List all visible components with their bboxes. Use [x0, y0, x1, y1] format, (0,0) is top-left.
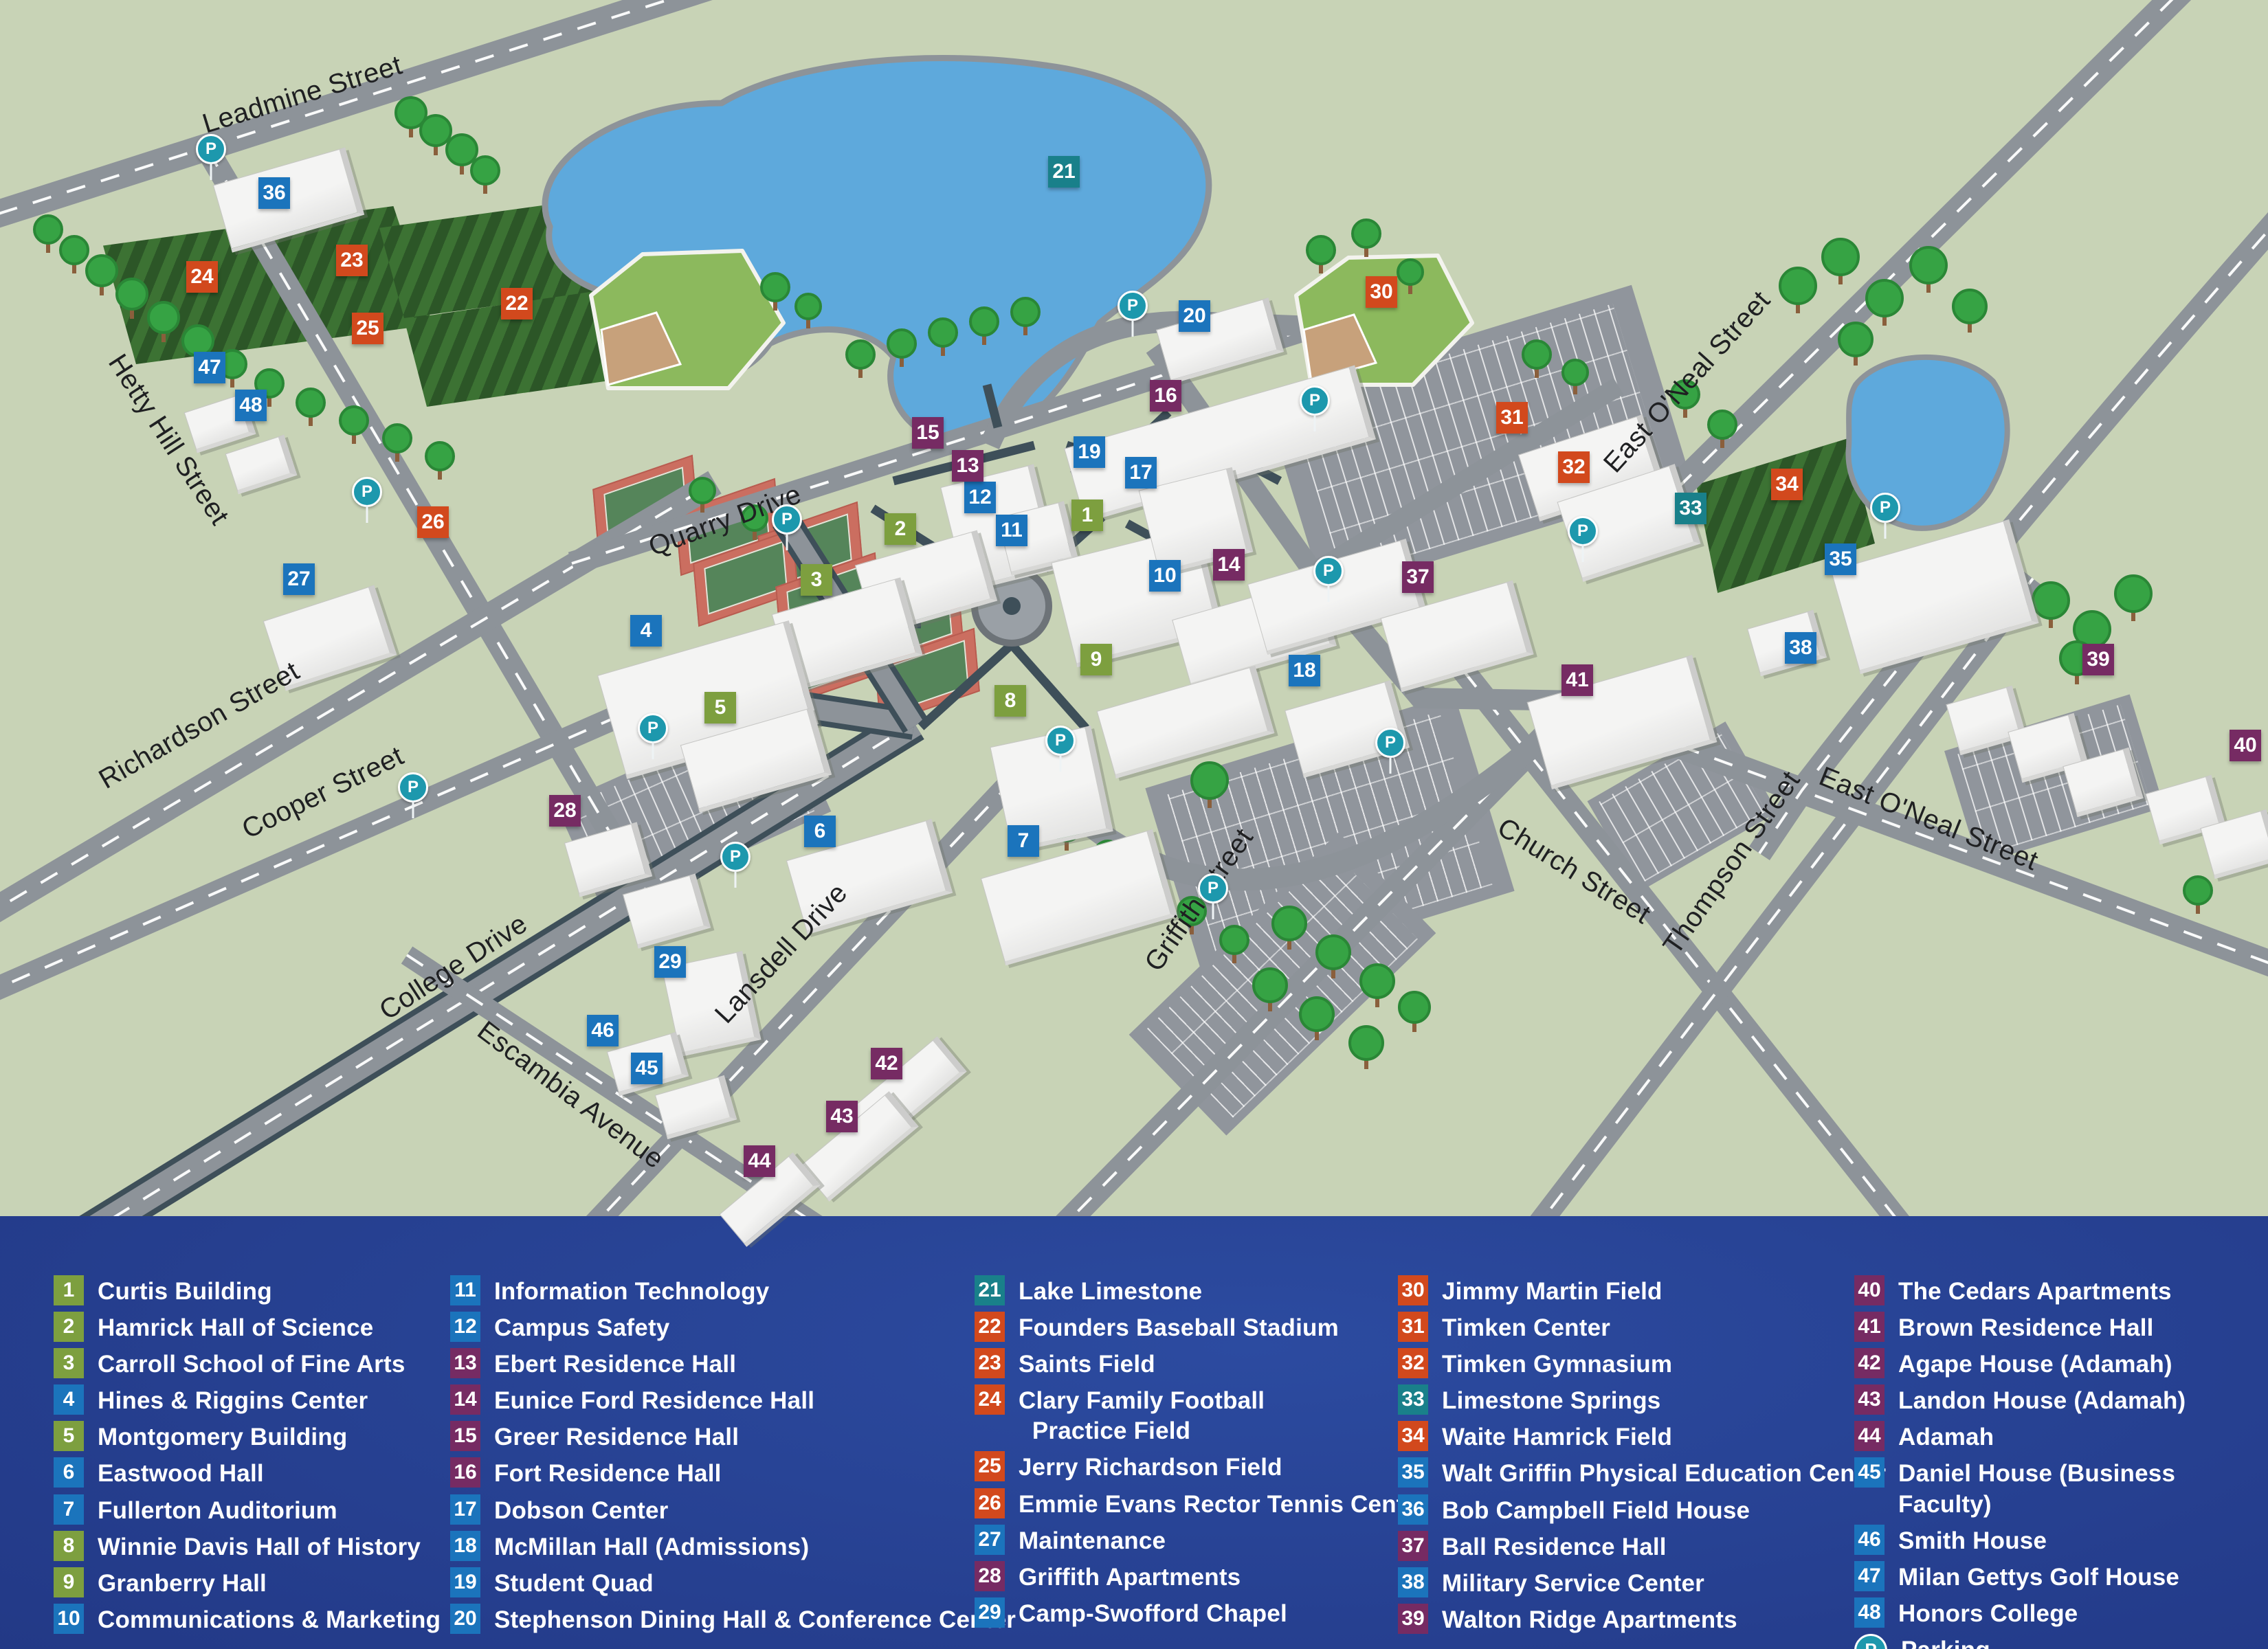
- legend-number-chip: 29: [975, 1597, 1005, 1628]
- legend-item-label: Ebert Residence Hall: [494, 1348, 736, 1380]
- legend-item-label: Milan Gettys Golf House: [1898, 1561, 2179, 1593]
- legend-number-chip: 27: [975, 1525, 1005, 1555]
- map-marker-10: 10: [1149, 560, 1181, 592]
- legend-item-label: Walton Ridge Apartments: [1442, 1604, 1737, 1635]
- legend-item-12: 12Campus Safety: [450, 1312, 1016, 1343]
- parking-marker-icon: P: [638, 713, 668, 743]
- map-marker-2: 2: [885, 513, 916, 545]
- parking-marker-icon: P: [1198, 873, 1228, 904]
- legend-item-3: 3Carroll School of Fine Arts: [54, 1348, 441, 1380]
- legend-item-label: Camp-Swofford Chapel: [1019, 1597, 1287, 1629]
- legend-item-38: 38Military Service Center: [1398, 1567, 1886, 1599]
- map-marker-14: 14: [1213, 549, 1245, 581]
- parking-marker-stem: [1582, 544, 1584, 562]
- parking-marker-icon: P: [1045, 726, 1076, 756]
- map-marker-22: 22: [501, 288, 533, 319]
- legend-number-chip: 1: [54, 1275, 84, 1305]
- map-marker-31: 31: [1496, 402, 1528, 434]
- legend-item-label: Carroll School of Fine Arts: [98, 1348, 405, 1380]
- legend-item-label: Fullerton Auditorium: [98, 1494, 337, 1526]
- legend-item-28: 28Griffith Apartments: [975, 1561, 1427, 1593]
- map-marker-40: 40: [2230, 730, 2261, 761]
- legend-number-chip: 39: [1398, 1604, 1428, 1634]
- legend-item-label: Fort Residence Hall: [494, 1457, 722, 1489]
- legend-item-5: 5Montgomery Building: [54, 1421, 441, 1452]
- legend-item-label: The Cedars Apartments: [1898, 1275, 2172, 1307]
- legend-number-chip: 33: [1398, 1384, 1428, 1415]
- legend-number-chip: 32: [1398, 1348, 1428, 1378]
- map-marker-18: 18: [1289, 655, 1320, 686]
- legend-number-chip: 19: [450, 1567, 480, 1597]
- legend-item-label: Smith House: [1898, 1525, 2047, 1556]
- map-marker-30: 30: [1366, 276, 1397, 308]
- legend-item-20: 20Stephenson Dining Hall & Conference Ce…: [450, 1604, 1016, 1635]
- map-marker-28: 28: [549, 795, 581, 827]
- map-marker-34: 34: [1771, 469, 1803, 500]
- legend-number-chip: 31: [1398, 1312, 1428, 1342]
- legend-item-14: 14Eunice Ford Residence Hall: [450, 1384, 1016, 1416]
- legend-item-label: Granberry Hall: [98, 1567, 267, 1599]
- map-marker-32: 32: [1558, 451, 1590, 483]
- legend-item-label: Daniel House (Business Faculty): [1898, 1457, 2268, 1519]
- legend-number-chip: 37: [1398, 1531, 1428, 1561]
- parking-marker-stem: [1212, 901, 1214, 919]
- map-marker-26: 26: [417, 506, 449, 538]
- legend-number-chip: 35: [1398, 1457, 1428, 1488]
- legend-item-23: 23Saints Field: [975, 1348, 1427, 1380]
- parking-marker-icon: P: [1375, 728, 1405, 758]
- legend-column-4: 30Jimmy Martin Field31Timken Center32Tim…: [1398, 1275, 1886, 1635]
- legend-item-46: 46Smith House: [1854, 1525, 2268, 1556]
- legend-item-label: Ball Residence Hall: [1442, 1531, 1667, 1562]
- legend-number-chip: 28: [975, 1561, 1005, 1591]
- legend-item-37: 37Ball Residence Hall: [1398, 1531, 1886, 1562]
- map-marker-39: 39: [2082, 644, 2114, 675]
- legend-item-label: Griffith Apartments: [1019, 1561, 1241, 1593]
- legend-item-label: Brown Residence Hall: [1898, 1312, 2154, 1343]
- legend-item-34: 34Waite Hamrick Field: [1398, 1421, 1886, 1452]
- legend-item-label: Hamrick Hall of Science: [98, 1312, 373, 1343]
- legend-item-19: 19Student Quad: [450, 1567, 1016, 1599]
- legend-item-label: Jimmy Martin Field: [1442, 1275, 1663, 1307]
- map-marker-7: 7: [1008, 825, 1039, 857]
- legend-item-10: 10Communications & Marketing: [54, 1604, 441, 1635]
- legend-item-40: 40The Cedars Apartments: [1854, 1275, 2268, 1307]
- map-marker-38: 38: [1785, 632, 1816, 664]
- map-marker-47: 47: [194, 352, 225, 383]
- legend-item-41: 41Brown Residence Hall: [1854, 1312, 2268, 1343]
- legend-item-22: 22Founders Baseball Stadium: [975, 1312, 1427, 1343]
- legend-item-label: Limestone Springs: [1442, 1384, 1660, 1416]
- legend-item-42: 42Agape House (Adamah): [1854, 1348, 2268, 1380]
- legend-item-label: Waite Hamrick Field: [1442, 1421, 1672, 1452]
- legend-item-label: Montgomery Building: [98, 1421, 348, 1452]
- parking-marker-icon: P: [196, 134, 226, 164]
- legend-item-label: Information Technology: [494, 1275, 769, 1307]
- parking-marker-stem: [1328, 584, 1330, 602]
- legend-item-24: 24Clary Family Football Practice Field: [975, 1384, 1427, 1446]
- legend-item-label: Dobson Center: [494, 1494, 668, 1526]
- legend-item-6: 6Eastwood Hall: [54, 1457, 441, 1489]
- legend-item-7: 7Fullerton Auditorium: [54, 1494, 441, 1526]
- legend-item-29: 29Camp-Swofford Chapel: [975, 1597, 1427, 1629]
- parking-marker-stem: [412, 800, 414, 818]
- legend-item-label: Campus Safety: [494, 1312, 669, 1343]
- legend-item-label: Founders Baseball Stadium: [1019, 1312, 1339, 1343]
- legend-item-33: 33Limestone Springs: [1398, 1384, 1886, 1416]
- legend-item-2: 2Hamrick Hall of Science: [54, 1312, 441, 1343]
- legend-number-chip: 44: [1854, 1421, 1885, 1451]
- parking-marker-stem: [786, 532, 788, 550]
- legend-item-label: Eunice Ford Residence Hall: [494, 1384, 814, 1416]
- parking-marker-stem: [210, 162, 212, 180]
- map-marker-41: 41: [1561, 664, 1593, 696]
- map-marker-3: 3: [801, 564, 832, 596]
- legend-item-label: Student Quad: [494, 1567, 654, 1599]
- legend-item-30: 30Jimmy Martin Field: [1398, 1275, 1886, 1307]
- map-marker-5: 5: [704, 692, 736, 723]
- map-marker-11: 11: [996, 515, 1027, 546]
- map-marker-23: 23: [336, 245, 368, 276]
- map-marker-8: 8: [994, 685, 1026, 717]
- legend-number-chip: 13: [450, 1348, 480, 1378]
- legend-number-chip: 48: [1854, 1597, 1885, 1628]
- legend-item-label: Agape House (Adamah): [1898, 1348, 2172, 1380]
- legend-number-chip: 43: [1854, 1384, 1885, 1415]
- legend-item-label: Communications & Marketing: [98, 1604, 441, 1635]
- legend-number-chip: 14: [450, 1384, 480, 1415]
- legend-number-chip: 20: [450, 1604, 480, 1634]
- parking-marker-icon: P: [1313, 556, 1344, 586]
- legend-item-27: 27Maintenance: [975, 1525, 1427, 1556]
- map-marker-1: 1: [1071, 500, 1103, 531]
- legend-item-label: Winnie Davis Hall of History: [98, 1531, 421, 1562]
- legend-number-chip: 2: [54, 1312, 84, 1342]
- parking-marker-icon: P: [1300, 385, 1330, 416]
- map-marker-48: 48: [235, 390, 267, 421]
- map-marker-6: 6: [804, 816, 836, 847]
- legend-number-chip: 34: [1398, 1421, 1428, 1451]
- legend-number-chip: 4: [54, 1384, 84, 1415]
- legend-item-45: 45Daniel House (Business Faculty): [1854, 1457, 2268, 1519]
- parking-marker-stem: [1885, 521, 1887, 539]
- campus-map-page: Leadmine StreetHetty Hill StreetRichards…: [0, 0, 2268, 1649]
- legend-item-47: 47Milan Gettys Golf House: [1854, 1561, 2268, 1593]
- legend-item-39: 39Walton Ridge Apartments: [1398, 1604, 1886, 1635]
- legend-number-chip: 36: [1398, 1494, 1428, 1525]
- legend-item-1: 1Curtis Building: [54, 1275, 441, 1307]
- parking-marker-stem: [366, 505, 368, 523]
- legend-number-chip: 8: [54, 1531, 84, 1561]
- map-marker-15: 15: [912, 417, 944, 449]
- legend-item-label: Bob Campbell Field House: [1442, 1494, 1750, 1526]
- legend-column-5: 40The Cedars Apartments41Brown Residence…: [1854, 1275, 2268, 1649]
- parking-marker-icon: P: [1870, 493, 1900, 523]
- map-marker-19: 19: [1074, 436, 1105, 468]
- map-marker-44: 44: [744, 1145, 775, 1177]
- legend-item-35: 35Walt Griffin Physical Education Center: [1398, 1457, 1886, 1489]
- parking-marker-icon: P: [720, 842, 751, 872]
- parking-marker-icon: P: [352, 477, 382, 507]
- legend-item-32: 32Timken Gymnasium: [1398, 1348, 1886, 1380]
- legend-number-chip: 46: [1854, 1525, 1885, 1555]
- map-marker-33: 33: [1675, 493, 1706, 524]
- legend-item-label: Emmie Evans Rector Tennis Center: [1019, 1488, 1427, 1520]
- map-marker-20: 20: [1179, 300, 1210, 332]
- legend-number-chip: 10: [54, 1604, 84, 1634]
- parking-marker-stem: [735, 870, 737, 888]
- legend-column-2: 11Information Technology12Campus Safety1…: [450, 1275, 1016, 1635]
- legend-item-label: Honors College: [1898, 1597, 2078, 1629]
- map-marker-21: 21: [1048, 156, 1080, 188]
- legend-column-1: 1Curtis Building2Hamrick Hall of Science…: [54, 1275, 441, 1635]
- map-marker-27: 27: [283, 563, 315, 595]
- legend-number-chip: 24: [975, 1384, 1005, 1415]
- legend-item-13: 13Ebert Residence Hall: [450, 1348, 1016, 1380]
- parking-marker-icon: P: [398, 772, 428, 803]
- legend-number-chip: 45: [1854, 1457, 1885, 1488]
- legend-item-15: 15Greer Residence Hall: [450, 1421, 1016, 1452]
- legend-item-label: Greer Residence Hall: [494, 1421, 739, 1452]
- map-marker-46: 46: [587, 1015, 619, 1046]
- legend-item-P: PParking: [1854, 1634, 2268, 1649]
- legend-number-chip: 38: [1398, 1567, 1428, 1597]
- legend-number-chip: 7: [54, 1494, 84, 1525]
- map-marker-25: 25: [352, 313, 383, 344]
- legend-item-44: 44Adamah: [1854, 1421, 2268, 1452]
- legend-item-8: 8Winnie Davis Hall of History: [54, 1531, 441, 1562]
- map-marker-29: 29: [654, 946, 686, 978]
- map-marker-35: 35: [1825, 543, 1856, 575]
- legend-number-chip: 25: [975, 1451, 1005, 1481]
- legend-item-17: 17Dobson Center: [450, 1494, 1016, 1526]
- legend-item-4: 4Hines & Riggins Center: [54, 1384, 441, 1416]
- legend-item-9: 9Granberry Hall: [54, 1567, 441, 1599]
- legend-number-chip: 11: [450, 1275, 480, 1305]
- legend-item-label: Walt Griffin Physical Education Center: [1442, 1457, 1886, 1489]
- legend-item-25: 25Jerry Richardson Field: [975, 1451, 1427, 1483]
- legend-panel: 1Curtis Building2Hamrick Hall of Science…: [0, 1216, 2268, 1649]
- legend-item-label: Maintenance: [1019, 1525, 1166, 1556]
- legend-number-chip: 16: [450, 1457, 480, 1488]
- legend-number-chip: 22: [975, 1312, 1005, 1342]
- parking-marker-icon: P: [1118, 291, 1148, 321]
- legend-number-chip: 17: [450, 1494, 480, 1525]
- parking-legend-icon: P: [1854, 1634, 1887, 1649]
- legend-item-label: Landon House (Adamah): [1898, 1384, 2186, 1416]
- legend-number-chip: 21: [975, 1275, 1005, 1305]
- legend-item-label: Adamah: [1898, 1421, 1994, 1452]
- legend-item-label: Timken Center: [1442, 1312, 1610, 1343]
- legend-item-label: McMillan Hall (Admissions): [494, 1531, 809, 1562]
- legend-number-chip: 47: [1854, 1561, 1885, 1591]
- legend-item-11: 11Information Technology: [450, 1275, 1016, 1307]
- legend-number-chip: 23: [975, 1348, 1005, 1378]
- parking-marker-stem: [1314, 414, 1316, 431]
- map-marker-43: 43: [826, 1101, 858, 1132]
- legend-item-31: 31Timken Center: [1398, 1312, 1886, 1343]
- map-marker-4: 4: [630, 615, 662, 647]
- map-marker-45: 45: [631, 1053, 663, 1084]
- legend-item-21: 21Lake Limestone: [975, 1275, 1427, 1307]
- map-marker-16: 16: [1150, 380, 1181, 412]
- parking-marker-stem: [652, 741, 654, 759]
- legend-item-label: Military Service Center: [1442, 1567, 1704, 1599]
- legend-item-label: Parking: [1901, 1634, 1990, 1649]
- legend-item-label: Jerry Richardson Field: [1019, 1451, 1282, 1483]
- legend-number-chip: 3: [54, 1348, 84, 1378]
- parking-marker-stem: [1132, 319, 1134, 337]
- map-marker-37: 37: [1402, 561, 1434, 593]
- legend-number-chip: 30: [1398, 1275, 1428, 1305]
- legend-item-label: Stephenson Dining Hall & Conference Cent…: [494, 1604, 1016, 1635]
- map-marker-13: 13: [952, 450, 983, 482]
- legend-number-chip: 6: [54, 1457, 84, 1488]
- legend-number-chip: 26: [975, 1488, 1005, 1518]
- map-marker-17: 17: [1125, 457, 1157, 489]
- legend-number-chip: 9: [54, 1567, 84, 1597]
- legend-column-3: 21Lake Limestone22Founders Baseball Stad…: [975, 1275, 1427, 1629]
- parking-marker-icon: P: [772, 504, 802, 535]
- legend-item-label: Clary Family Football Practice Field: [1019, 1384, 1265, 1446]
- legend-item-43: 43Landon House (Adamah): [1854, 1384, 2268, 1416]
- legend-number-chip: 5: [54, 1421, 84, 1451]
- map-marker-12: 12: [964, 482, 996, 513]
- map-marker-36: 36: [258, 177, 290, 209]
- map-marker-24: 24: [186, 261, 218, 293]
- legend-number-chip: 41: [1854, 1312, 1885, 1342]
- map-area: Leadmine StreetHetty Hill StreetRichards…: [0, 0, 2268, 1216]
- legend-number-chip: 12: [450, 1312, 480, 1342]
- legend-item-label: Curtis Building: [98, 1275, 272, 1307]
- legend-item-48: 48Honors College: [1854, 1597, 2268, 1629]
- legend-item-label: Eastwood Hall: [98, 1457, 264, 1489]
- legend-item-16: 16Fort Residence Hall: [450, 1457, 1016, 1489]
- legend-item-36: 36Bob Campbell Field House: [1398, 1494, 1886, 1526]
- legend-item-label: Timken Gymnasium: [1442, 1348, 1672, 1380]
- legend-item-label: Hines & Riggins Center: [98, 1384, 368, 1416]
- map-markers-layer: 1234567891011121314151617181920212223242…: [0, 0, 2268, 1216]
- legend-number-chip: 18: [450, 1531, 480, 1561]
- parking-marker-stem: [1060, 754, 1062, 772]
- legend-number-chip: 40: [1854, 1275, 1885, 1305]
- legend-number-chip: 42: [1854, 1348, 1885, 1378]
- map-marker-42: 42: [871, 1048, 902, 1079]
- legend-item-26: 26Emmie Evans Rector Tennis Center: [975, 1488, 1427, 1520]
- parking-marker-stem: [1390, 756, 1392, 774]
- legend-number-chip: 15: [450, 1421, 480, 1451]
- map-marker-9: 9: [1080, 644, 1112, 675]
- parking-marker-icon: P: [1568, 516, 1598, 546]
- legend-item-label: Saints Field: [1019, 1348, 1155, 1380]
- legend-item-18: 18McMillan Hall (Admissions): [450, 1531, 1016, 1562]
- legend-item-label: Lake Limestone: [1019, 1275, 1202, 1307]
